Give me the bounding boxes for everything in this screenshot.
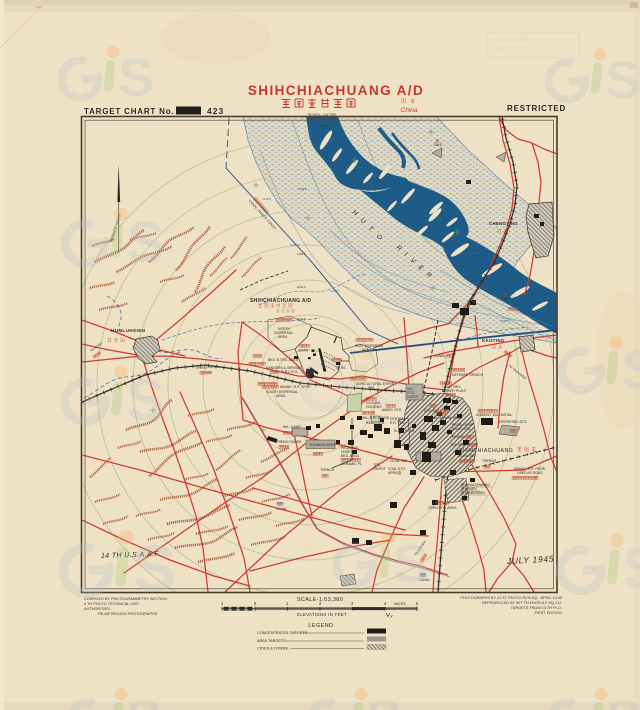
- svg-text:1234.5: 1234.5: [297, 285, 306, 289]
- svg-text:TRENCH: TRENCH: [482, 459, 497, 463]
- svg-text:TRENCH: TRENCH: [320, 468, 335, 472]
- svg-text:REPRODUCED BY 90T TH ENGR: REPRODUCED BY 90T TH ENGR A.F HQ CO.: [482, 601, 562, 605]
- svg-text:ELEVATIONS IN FEET: ELEVATIONS IN FEET: [297, 612, 347, 617]
- svg-text:FUEL STG.: FUEL STG.: [281, 370, 298, 374]
- svg-text:CITIES & TOWNS.: CITIES & TOWNS.: [257, 647, 289, 651]
- svg-text:BKS. B.TRG. AREA: BKS. B.TRG. AREA: [268, 358, 299, 362]
- svg-text:PHOTOGRAPHS BY 21 ST PHOTO: PHOTOGRAPHS BY 21 ST PHOTO RCN SQ - APRI…: [460, 596, 563, 600]
- svg-text:MILES: MILES: [394, 602, 406, 606]
- svg-text:SHIHCHIACHUANG A/D: SHIHCHIACHUANG A/D: [250, 298, 311, 304]
- svg-text:BKS. AREA: BKS. AREA: [341, 454, 359, 458]
- svg-text:1234.5: 1234.5: [297, 317, 306, 321]
- svg-text:FIRST EDITION: FIRST EDITION: [535, 611, 563, 615]
- svg-text:WIL. CAMP: WIL. CAMP: [283, 425, 301, 429]
- svg-text:NND 91755 1977: NND 91755 1977: [492, 46, 531, 52]
- svg-text:AUTHORITIES:-: AUTHORITIES:-: [83, 607, 113, 611]
- svg-text:AREA TARGETS: AREA TARGETS: [257, 639, 286, 643]
- svg-text:DIKE: DIKE: [502, 297, 511, 301]
- svg-text:KAOYING: KAOYING: [482, 338, 505, 343]
- svg-text:DISPERSED STG.: DISPERSED STG.: [499, 420, 528, 424]
- svg-text:POWER PLANT: POWER PLANT: [442, 389, 467, 393]
- svg-text:AREA: AREA: [278, 335, 288, 339]
- svg-text:OLAN. IND.: OLAN. IND.: [390, 459, 408, 463]
- svg-text:RESTRICTED: RESTRICTED: [507, 104, 566, 113]
- svg-text:1234.5: 1234.5: [320, 124, 329, 128]
- svg-text:RADIO STA.: RADIO STA.: [452, 427, 471, 431]
- svg-text:AREA: AREA: [276, 394, 286, 398]
- svg-text:DEFENSE TRENCH: DEFENSE TRENCH: [452, 373, 484, 377]
- svg-text:127M.5: 127M.5: [262, 197, 272, 201]
- svg-text:1234.5: 1234.5: [298, 187, 307, 191]
- svg-text:R.R. YDS.: R.R. YDS.: [390, 421, 406, 425]
- svg-text:TRAINING AREA: TRAINING AREA: [309, 443, 336, 447]
- svg-text:4 TH PHOTO TECHNICAL UNIT: 4 TH PHOTO TECHNICAL UNIT: [84, 602, 140, 606]
- svg-text:N.J.T.T.S. SO.: N.J.T.T.S. SO.: [394, 429, 415, 433]
- svg-text:123M.5: 123M.5: [330, 289, 340, 293]
- svg-text:TEX. WIL.: TEX. WIL.: [450, 443, 466, 447]
- svg-text:CHENGTING: CHENGTING: [489, 221, 518, 226]
- svg-text:HUOLUHSIEN: HUOLUHSIEN: [111, 328, 146, 333]
- svg-text:DIKE: DIKE: [434, 143, 443, 147]
- svg-text:TRI-METROGON PHOTOGRAPHS: TRI-METROGON PHOTOGRAPHS: [97, 612, 158, 616]
- svg-text:China: China: [401, 107, 418, 114]
- svg-text:TARGET CHART No.: TARGET CHART No.: [84, 107, 174, 116]
- svg-text:AREA: AREA: [388, 471, 398, 475]
- svg-text:UNIDENT. WIL. INSTAL.: UNIDENT. WIL. INSTAL.: [476, 413, 513, 417]
- svg-text:123M.5: 123M.5: [470, 251, 480, 255]
- svg-text:123M.5: 123M.5: [500, 319, 510, 323]
- svg-text:123M.5: 123M.5: [290, 243, 300, 247]
- svg-text:OPEN STG. AREA: OPEN STG. AREA: [428, 506, 457, 510]
- svg-text:WIL. ADWIN. AREA: WIL. ADWIN. AREA: [432, 416, 463, 420]
- svg-text:QTRS.: QTRS.: [336, 366, 346, 370]
- svg-text:SHIHCHIACHUANG A/D: SHIHCHIACHUANG A/D: [248, 83, 424, 98]
- svg-text:DECLASSIFIED A-41: DECLASSIFIED A-41: [492, 38, 540, 44]
- svg-text:DEPOT: DEPOT: [374, 467, 386, 471]
- svg-text:LEGEND: LEGEND: [308, 623, 333, 629]
- svg-text:CERAMIC PL.: CERAMIC PL.: [341, 462, 363, 466]
- svg-text:TARGETS FROM 14 TH P.I.D.: TARGETS FROM 14 TH P.I.D.: [511, 606, 562, 610]
- svg-text:SHIHMENSHIH: SHIHMENSHIH: [461, 491, 485, 495]
- svg-text:ELEV. 250': ELEV. 250': [459, 454, 476, 458]
- svg-text:USED AS ROAD: USED AS ROAD: [517, 471, 543, 475]
- svg-text:1234.5: 1234.5: [297, 252, 306, 256]
- svg-text:PRISON: PRISON: [452, 435, 466, 439]
- svg-text:ADMIN: ADMIN: [298, 349, 309, 353]
- svg-text:FIRING RANGE: FIRING RANGE: [277, 440, 302, 444]
- svg-text:423: 423: [207, 106, 224, 116]
- svg-text:CONCENTRATED TARGETS: CONCENTRATED TARGETS: [257, 631, 307, 635]
- svg-text:RADIO STA.: RADIO STA.: [366, 421, 385, 425]
